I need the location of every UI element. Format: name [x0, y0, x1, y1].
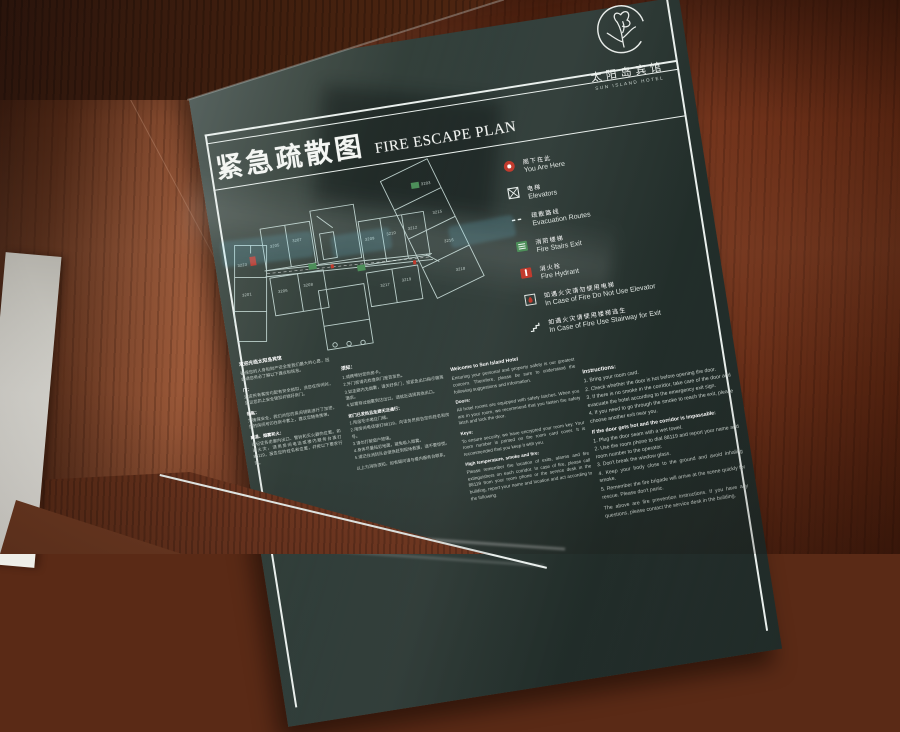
room-number: 3208: [303, 282, 313, 288]
room-number: 3217: [380, 282, 390, 288]
room-labels: 3223320132053207320932103212320632083217…: [214, 151, 502, 389]
fire-escape-sign-panel: 太阳岛宾馆 SUN ISLAND HOTEL 紧急疏散图 FIRE ESCAPE…: [185, 0, 782, 727]
room-number: 3201: [242, 291, 252, 297]
room-number: 3215: [432, 208, 442, 214]
column-en-welcome: Welcome to Sun Island Hotel Ensuring you…: [450, 348, 594, 503]
fire-hydrant-icon: [519, 266, 533, 280]
floor-plan: 3223320132053207320932103212320632083217…: [214, 151, 502, 389]
column-cn-instructions: 须知： 1.请携带好您的房卡。2.开门前请先检查房门是否发热。3.如走廊内无烟雾…: [340, 351, 456, 472]
elevator-icon: [507, 186, 521, 200]
legend: 阁下在此 You Are Here 电梯 Elevators 疏散路线 Evac…: [502, 130, 721, 347]
room-number: 3206: [278, 288, 288, 294]
no-elevator-icon: [524, 293, 538, 307]
fire-stairs-icon: [515, 240, 529, 254]
lotus-flower-icon: [590, 0, 652, 60]
column-cn-welcome: 欢迎光临太阳岛宾馆 确保您的人身和财产安全是我们最大的心愿，因此请您务必了解以下…: [239, 348, 344, 467]
stairway-exit-icon: [528, 320, 542, 334]
room-number: 3212: [407, 225, 417, 231]
room-number: 3203: [421, 180, 431, 186]
room-number: 3218: [455, 266, 465, 272]
you-are-here-icon: [502, 160, 516, 174]
column-en-instructions: Instructions: 1. Bring your room card.2.…: [582, 346, 750, 521]
room-number: 3219: [401, 276, 411, 282]
